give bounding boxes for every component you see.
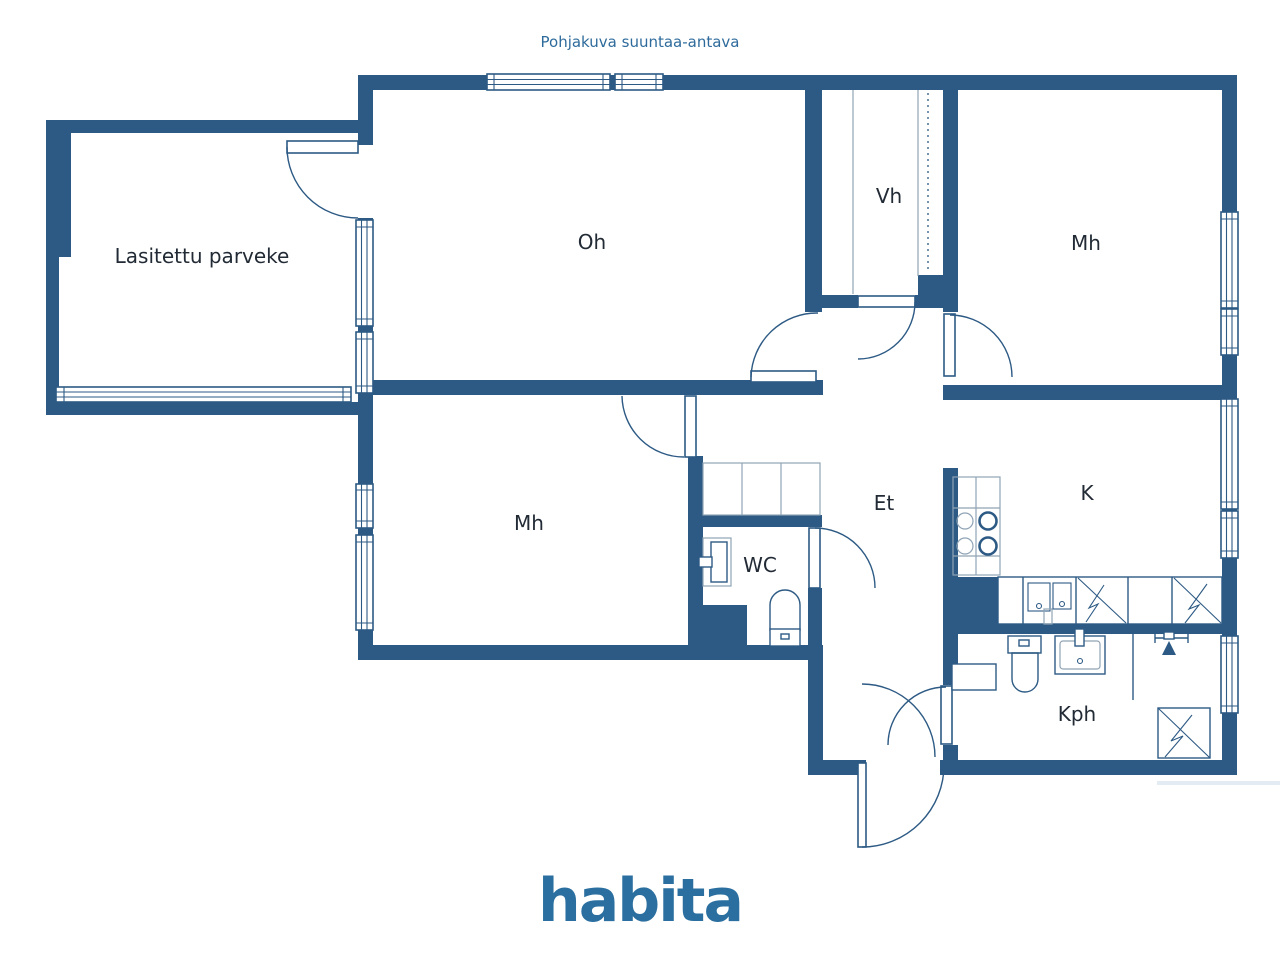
- window: [1221, 212, 1238, 308]
- room-label-wc: WC: [743, 553, 777, 577]
- wall-central-upper: [943, 90, 958, 312]
- room-label-kitchen: K: [1080, 481, 1094, 505]
- wall-closet-bottom-b: [915, 295, 943, 308]
- room-label-bathroom: Kph: [1058, 702, 1097, 726]
- bathroom-cabinet: [952, 664, 996, 690]
- plan-title: Pohjakuva suuntaa-antava: [541, 33, 740, 51]
- wall-wc-block: [688, 605, 747, 647]
- balcony-door: [287, 141, 358, 218]
- room-label-living: Oh: [578, 230, 606, 254]
- window: [1221, 399, 1238, 509]
- wall-balcony-left-lower: [46, 257, 59, 405]
- bedroom-bottom-door: [622, 396, 696, 457]
- wall-bedroom-kitchen: [943, 385, 1237, 400]
- wall-left-upper: [358, 90, 373, 145]
- walls: [46, 75, 1237, 775]
- shower-icon: [1133, 632, 1188, 700]
- room-label-bedroom-bottom: Mh: [514, 511, 544, 535]
- wall-wc-right-a: [808, 515, 822, 527]
- room-label-hall: Et: [874, 491, 895, 515]
- window: [356, 220, 373, 326]
- wc-door: [809, 528, 875, 588]
- wall-living-closet: [805, 90, 822, 312]
- window: [56, 387, 351, 402]
- bathroom-door: [888, 686, 952, 745]
- wardrobe-icon: [703, 463, 820, 515]
- wall-closet-bottom-a: [805, 295, 858, 308]
- wall-bottom-left: [358, 645, 823, 660]
- doors: [287, 141, 1012, 847]
- kitchen-counter: [998, 577, 1222, 624]
- wall-hall-left: [808, 645, 823, 775]
- wall-balcony-top: [46, 120, 358, 133]
- window: [487, 74, 610, 90]
- floor-plan: Pohjakuva suuntaa-antava: [0, 0, 1280, 960]
- window: [1221, 636, 1238, 713]
- wall-kitchen-left: [943, 468, 958, 577]
- stove-icon: [953, 477, 1000, 575]
- wall-bathroom-left-b: [943, 745, 958, 775]
- wall-bottom-right-b: [940, 760, 1237, 775]
- closet-door: [858, 296, 915, 359]
- bathroom-toilet-icon: [1008, 636, 1041, 692]
- room-label-closet: Vh: [876, 184, 902, 208]
- living-room-door: [751, 313, 818, 382]
- wall-wardrobe-bottom: [703, 515, 820, 527]
- wall-balcony-bottom: [46, 402, 373, 415]
- wall-kitchen-block: [943, 577, 1000, 634]
- wc-toilet-icon: [770, 590, 800, 646]
- window: [356, 484, 373, 528]
- window: [356, 332, 373, 393]
- room-label-bedroom-top: Mh: [1071, 231, 1101, 255]
- wall-closet-block: [918, 275, 943, 295]
- plan-artifact: [1157, 781, 1280, 785]
- wc-sink-icon: [699, 538, 731, 586]
- bedroom-top-door: [944, 314, 1012, 377]
- room-label-balcony: Lasitettu parveke: [115, 244, 290, 268]
- fixtures: [699, 90, 1280, 785]
- wall-wc-right-b: [808, 588, 822, 645]
- habita-logo: habita: [538, 866, 742, 936]
- wall-kitchen-bathroom: [1000, 624, 1237, 634]
- bathroom-sink-icon: [1055, 629, 1105, 674]
- wall-balcony-left-upper: [46, 120, 71, 257]
- window: [1221, 511, 1238, 558]
- window: [1221, 309, 1238, 355]
- washing-machine-icon: [1158, 708, 1210, 758]
- window: [356, 535, 373, 630]
- window: [615, 74, 663, 90]
